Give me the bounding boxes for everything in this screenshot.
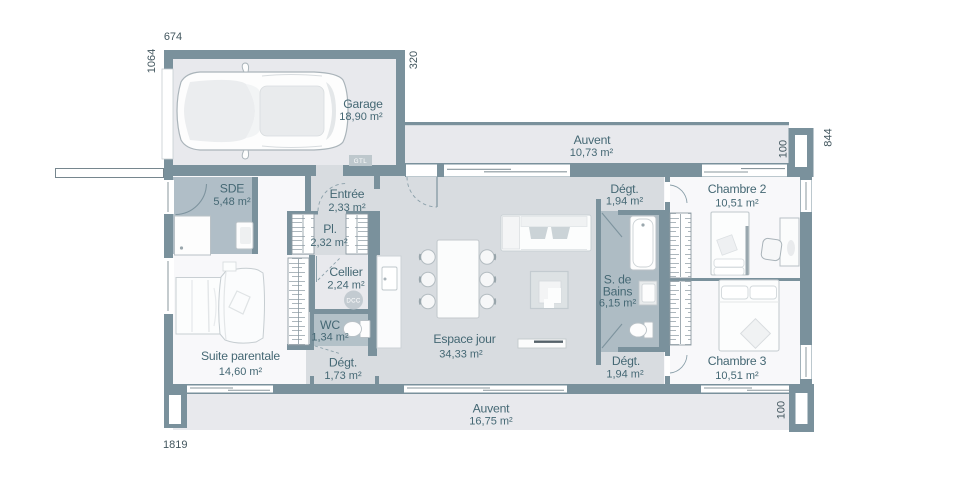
svg-text:1,73 m²: 1,73 m² bbox=[324, 370, 362, 382]
svg-text:Dégt.: Dégt. bbox=[610, 182, 638, 196]
svg-text:100: 100 bbox=[776, 401, 788, 419]
svg-text:844: 844 bbox=[823, 128, 835, 146]
svg-text:GTL: GTL bbox=[354, 158, 368, 165]
svg-text:Garage: Garage bbox=[343, 97, 383, 111]
svg-text:2,33 m²: 2,33 m² bbox=[328, 202, 366, 214]
svg-text:320: 320 bbox=[408, 51, 420, 69]
svg-text:Dégt.: Dégt. bbox=[329, 356, 357, 370]
svg-text:1819: 1819 bbox=[163, 439, 187, 451]
svg-text:Bains: Bains bbox=[603, 284, 633, 298]
svg-text:Pl.: Pl. bbox=[323, 222, 337, 236]
svg-text:2,24 m²: 2,24 m² bbox=[327, 280, 365, 292]
svg-text:5,48 m²: 5,48 m² bbox=[213, 196, 251, 208]
svg-text:100: 100 bbox=[778, 140, 790, 158]
svg-text:1064: 1064 bbox=[146, 49, 158, 73]
svg-text:SDE: SDE bbox=[220, 182, 245, 196]
svg-text:Suite parentale: Suite parentale bbox=[201, 349, 280, 363]
svg-text:18,90 m²: 18,90 m² bbox=[339, 111, 383, 123]
svg-text:Auvent: Auvent bbox=[473, 402, 511, 416]
svg-text:Chambre 3: Chambre 3 bbox=[708, 354, 767, 368]
svg-text:Auvent: Auvent bbox=[574, 133, 612, 147]
svg-text:16,75 m²: 16,75 m² bbox=[469, 416, 513, 428]
svg-text:Entrée: Entrée bbox=[330, 187, 365, 201]
svg-text:2,32 m²: 2,32 m² bbox=[310, 237, 348, 249]
svg-text:14,60 m²: 14,60 m² bbox=[219, 366, 263, 378]
svg-text:34,33 m²: 34,33 m² bbox=[439, 349, 483, 361]
svg-text:674: 674 bbox=[164, 31, 182, 43]
svg-text:Espace jour: Espace jour bbox=[433, 332, 495, 346]
svg-text:WC: WC bbox=[320, 318, 340, 332]
svg-text:Chambre 2: Chambre 2 bbox=[708, 182, 767, 196]
svg-text:10,51 m²: 10,51 m² bbox=[715, 198, 759, 210]
svg-text:Dégt.: Dégt. bbox=[612, 354, 640, 368]
svg-text:1,94 m²: 1,94 m² bbox=[606, 196, 644, 208]
svg-text:6,15 m²: 6,15 m² bbox=[599, 298, 637, 310]
svg-text:Cellier: Cellier bbox=[329, 265, 362, 279]
svg-text:1,34 m²: 1,34 m² bbox=[311, 332, 349, 344]
svg-text:10,51 m²: 10,51 m² bbox=[715, 370, 759, 382]
svg-text:1,94 m²: 1,94 m² bbox=[606, 369, 644, 381]
svg-text:10,73 m²: 10,73 m² bbox=[570, 147, 614, 159]
svg-text:DCC: DCC bbox=[346, 298, 361, 305]
